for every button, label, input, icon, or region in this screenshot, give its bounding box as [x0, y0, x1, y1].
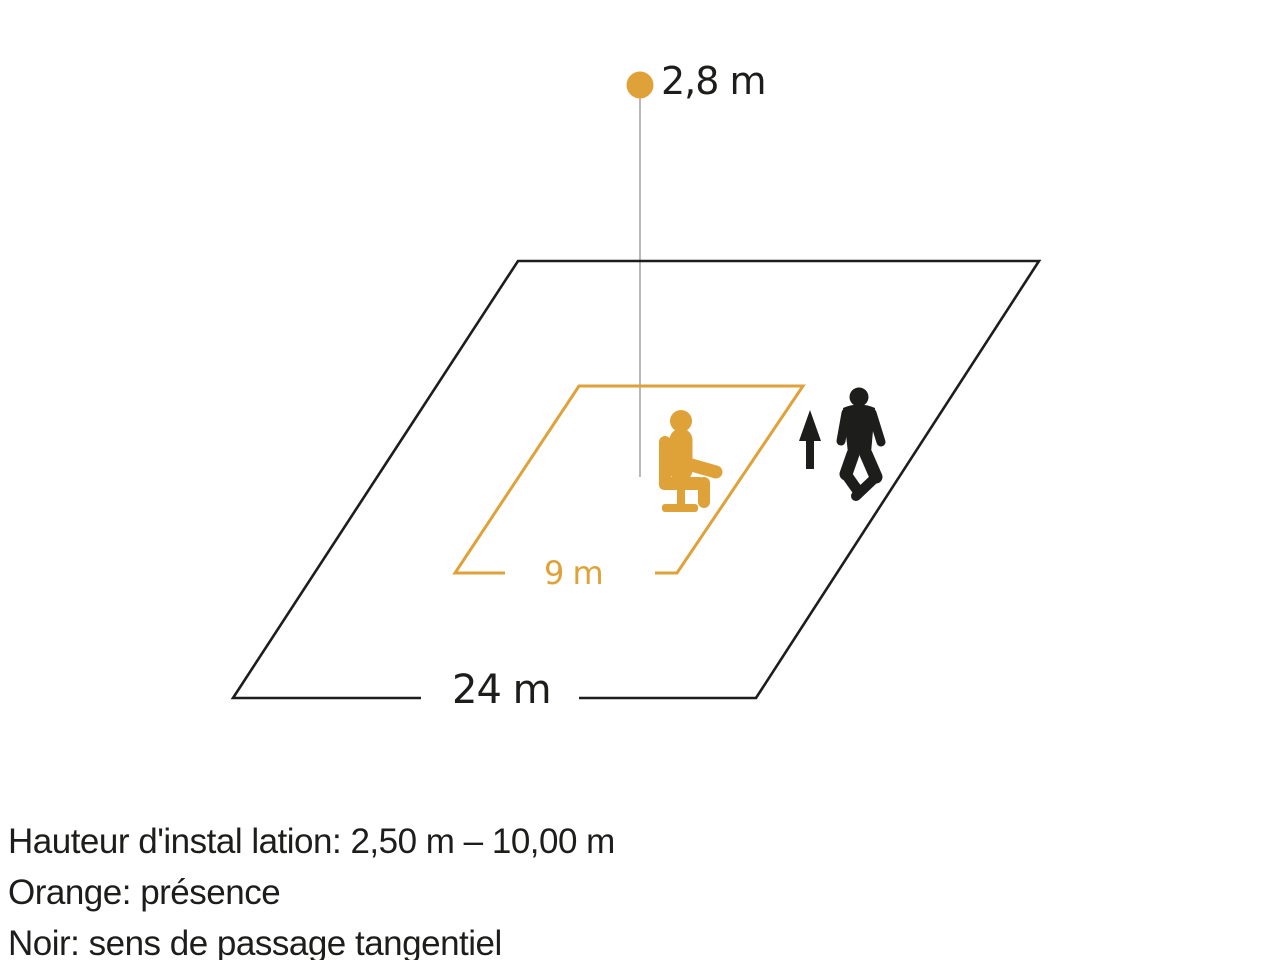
outer-detection-area-outline: [233, 261, 1039, 698]
seated-person-icon: [659, 410, 716, 512]
legend-black-meaning: Noir: sens de passage tangentiel: [8, 918, 615, 960]
sensor-dot-icon: [627, 72, 654, 99]
legend: Hauteur d'instal lation: 2,50 m – 10,00 …: [8, 816, 615, 960]
presence-area-width-label: 9 m: [544, 557, 603, 589]
legend-orange-meaning: Orange: présence: [8, 867, 615, 918]
presence-area-outline: [455, 386, 803, 573]
legend-installation-height: Hauteur d'instal lation: 2,50 m – 10,00 …: [8, 816, 615, 867]
up-arrow-icon: [799, 410, 821, 469]
detection-range-figure: 2,8 m 9 m 24 m Hauteur d'instal lation: …: [0, 0, 1280, 960]
sensor-height-label: 2,8 m: [661, 62, 766, 100]
walking-person-icon: [841, 388, 881, 497]
outer-area-width-label: 24 m: [452, 670, 551, 710]
